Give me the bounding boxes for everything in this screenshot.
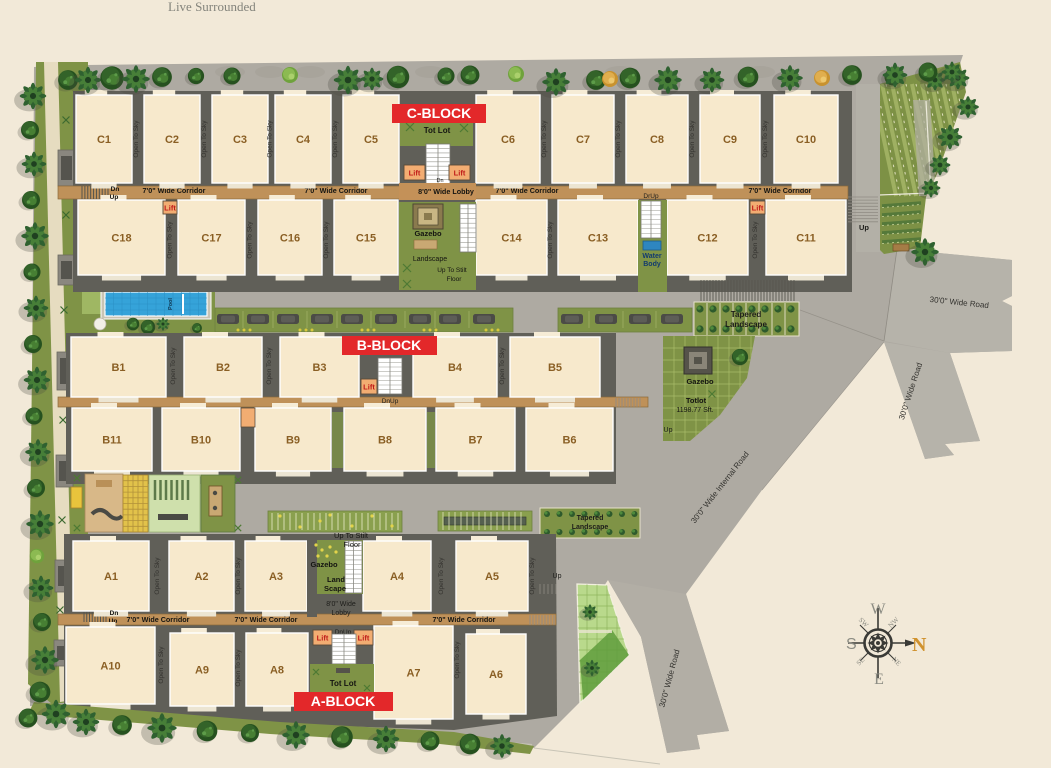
svg-text:A4: A4	[390, 571, 405, 583]
svg-text:Landscape: Landscape	[725, 320, 767, 329]
svg-text:Open To Sky: Open To Sky	[235, 557, 242, 595]
svg-text:Water: Water	[642, 253, 661, 260]
svg-text:Open To Sky: Open To Sky	[133, 120, 140, 158]
svg-text:A1: A1	[104, 571, 118, 583]
svg-text:Land: Land	[327, 575, 345, 584]
svg-text:A-BLOCK: A-BLOCK	[311, 693, 376, 709]
svg-text:Open To Sky: Open To Sky	[267, 120, 274, 158]
svg-text:Lift: Lift	[317, 633, 329, 642]
svg-text:Gazebo: Gazebo	[310, 560, 338, 569]
svg-text:Floor: Floor	[447, 276, 463, 283]
svg-text:Open To Sky: Open To Sky	[615, 120, 622, 158]
svg-text:Open To Sky: Open To Sky	[762, 120, 769, 158]
svg-text:C18: C18	[111, 233, 131, 245]
svg-text:Tapered: Tapered	[577, 515, 604, 522]
svg-text:C14: C14	[501, 233, 522, 245]
svg-text:C11: C11	[796, 233, 816, 245]
svg-text:C6: C6	[501, 134, 515, 146]
svg-text:C13: C13	[588, 233, 608, 245]
svg-text:N: N	[912, 634, 927, 656]
svg-text:Open To Sky: Open To Sky	[323, 221, 330, 259]
svg-text:Up: Up	[859, 223, 869, 232]
svg-text:Lift: Lift	[164, 203, 176, 212]
svg-text:Open To Sky: Open To Sky	[332, 120, 339, 158]
svg-text:A6: A6	[489, 669, 503, 681]
svg-text:Up: Up	[664, 427, 673, 434]
svg-text:C17: C17	[201, 233, 221, 245]
svg-text:A5: A5	[485, 571, 499, 583]
svg-text:C3: C3	[233, 134, 247, 146]
svg-text:Open To Sky: Open To Sky	[266, 347, 273, 385]
svg-text:A3: A3	[269, 571, 283, 583]
svg-text:Landscape: Landscape	[572, 524, 609, 531]
svg-text:Open To Sky: Open To Sky	[454, 641, 461, 679]
svg-text:B3: B3	[312, 362, 326, 374]
svg-text:Landscape: Landscape	[413, 256, 447, 263]
svg-text:C-BLOCK: C-BLOCK	[407, 105, 472, 121]
svg-text:Open To Sky: Open To Sky	[499, 347, 506, 385]
svg-text:Open To Sky: Open To Sky	[541, 120, 548, 158]
svg-text:B7: B7	[468, 435, 482, 447]
svg-text:Open To Sky: Open To Sky	[201, 120, 208, 158]
svg-text:B1: B1	[111, 362, 125, 374]
svg-text:B9: B9	[286, 435, 300, 447]
svg-text:Pool: Pool	[168, 298, 174, 310]
svg-text:Open To Sky: Open To Sky	[170, 347, 177, 385]
svg-text:Open To Sky: Open To Sky	[547, 221, 554, 259]
svg-text:E: E	[874, 671, 884, 688]
svg-text:Tapered: Tapered	[731, 310, 762, 319]
svg-text:Open To Sky: Open To Sky	[235, 649, 242, 687]
svg-text:7'0" Wide Corridor: 7'0" Wide Corridor	[127, 615, 190, 624]
svg-text:Open To Sky: Open To Sky	[167, 221, 174, 259]
svg-text:B6: B6	[562, 435, 576, 447]
svg-text:Lift: Lift	[358, 633, 370, 642]
svg-text:Scape: Scape	[324, 584, 346, 593]
svg-text:Up: Up	[553, 573, 562, 580]
svg-text:Gazebo: Gazebo	[414, 229, 442, 238]
svg-text:Lift: Lift	[752, 203, 764, 212]
svg-text:Open To Sky: Open To Sky	[752, 221, 759, 259]
svg-text:Open To Sky: Open To Sky	[438, 557, 445, 595]
svg-text:B4: B4	[448, 362, 463, 374]
svg-text:1198.77 Sft.: 1198.77 Sft.	[676, 407, 713, 414]
svg-text:A7: A7	[406, 668, 420, 680]
svg-text:Open To Sky: Open To Sky	[689, 120, 696, 158]
svg-text:C2: C2	[165, 134, 179, 146]
svg-text:B-BLOCK: B-BLOCK	[357, 337, 422, 353]
svg-text:C1: C1	[97, 134, 111, 146]
svg-text:Totlot: Totlot	[686, 396, 707, 405]
svg-text:C12: C12	[697, 233, 717, 245]
svg-text:C15: C15	[356, 233, 376, 245]
svg-text:Lift: Lift	[454, 168, 466, 177]
svg-text:C5: C5	[364, 134, 378, 146]
svg-text:Dn: Dn	[111, 186, 120, 193]
svg-text:Up: Up	[110, 194, 119, 201]
svg-text:8'0" Wide Lobby: 8'0" Wide Lobby	[418, 187, 474, 196]
svg-text:Body: Body	[643, 261, 661, 268]
svg-text:A10: A10	[100, 661, 120, 673]
svg-text:A9: A9	[195, 665, 209, 677]
svg-text:Gazebo: Gazebo	[686, 377, 714, 386]
svg-text:Open To Sky: Open To Sky	[529, 557, 536, 595]
svg-text:Up To Stilt: Up To Stilt	[437, 267, 467, 274]
svg-text:Open To Sky: Open To Sky	[158, 646, 165, 684]
svg-text:Floor: Floor	[343, 540, 361, 549]
svg-text:DrUp: DrUp	[643, 193, 659, 200]
svg-text:Dn: Dn	[110, 610, 119, 617]
svg-text:C16: C16	[280, 233, 300, 245]
svg-text:S: S	[846, 636, 857, 653]
svg-text:Lobby: Lobby	[331, 610, 351, 617]
svg-text:Open To Sky: Open To Sky	[247, 221, 254, 259]
svg-text:C10: C10	[796, 134, 816, 146]
svg-text:Up To Stilt: Up To Stilt	[334, 531, 369, 540]
svg-text:Live Surrounded: Live Surrounded	[168, 0, 256, 14]
svg-text:Lift: Lift	[363, 382, 375, 391]
svg-text:B5: B5	[548, 362, 562, 374]
svg-text:C9: C9	[723, 134, 737, 146]
svg-text:W: W	[870, 601, 886, 618]
svg-text:8'0" Wide: 8'0" Wide	[326, 601, 356, 608]
svg-text:B10: B10	[191, 435, 211, 447]
svg-text:A2: A2	[194, 571, 208, 583]
svg-text:B11: B11	[102, 435, 122, 447]
svg-text:B8: B8	[378, 435, 392, 447]
svg-text:A8: A8	[270, 665, 284, 677]
svg-text:Open To Sky: Open To Sky	[154, 557, 161, 595]
svg-text:C7: C7	[576, 134, 590, 146]
svg-text:Tot Lot: Tot Lot	[424, 126, 451, 135]
svg-text:C4: C4	[296, 134, 311, 146]
svg-text:Lift: Lift	[409, 168, 421, 177]
svg-text:C8: C8	[650, 134, 664, 146]
svg-text:B2: B2	[216, 362, 230, 374]
svg-text:Tot Lot: Tot Lot	[330, 679, 357, 688]
